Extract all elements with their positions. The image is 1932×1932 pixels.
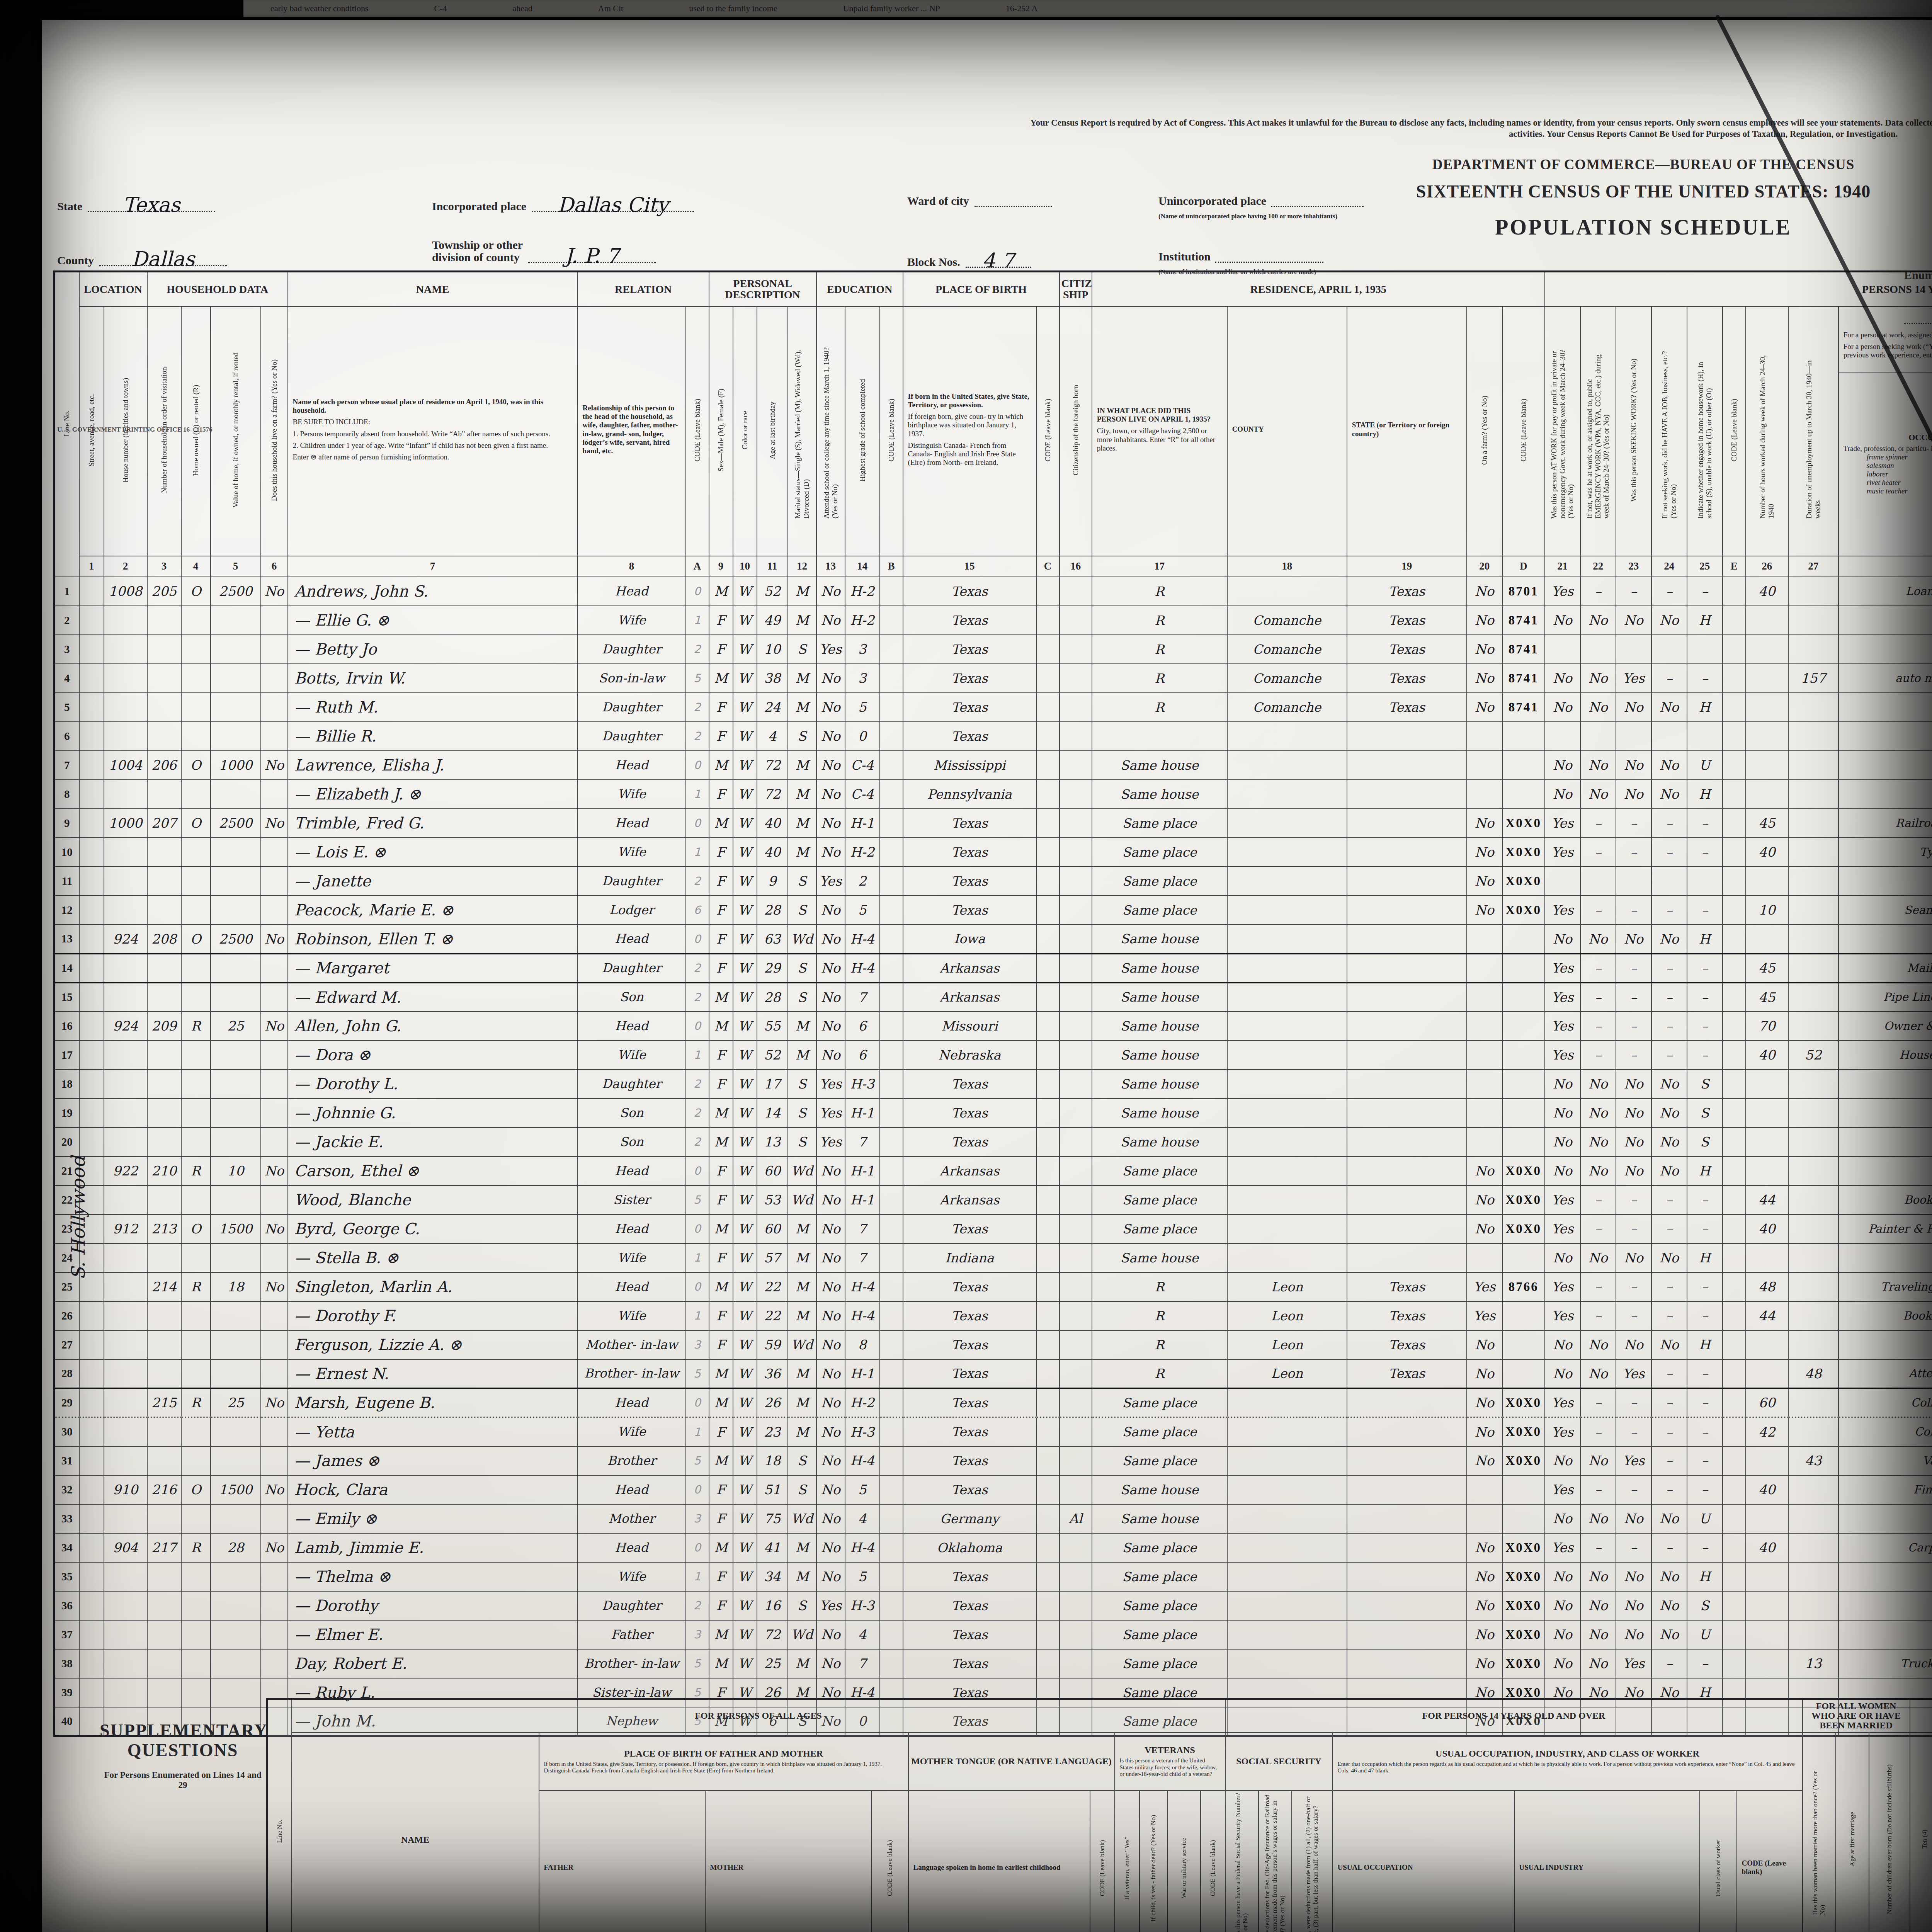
col-number-street: 1 (79, 556, 104, 577)
cell-grade: H-3 (845, 1070, 880, 1099)
cell-r17: R (1092, 606, 1227, 635)
cell-codeE (1723, 1388, 1746, 1417)
cell-codeC (1036, 1330, 1060, 1359)
cell-c23: Yes (1616, 1446, 1651, 1475)
cell-hh (147, 693, 181, 722)
cell-codeE (1723, 1562, 1746, 1591)
cell-sch: No (816, 809, 845, 838)
population-schedule-table: Line No.LOCATIONHOUSEHOLD DATANAMERELATI… (53, 270, 1932, 1737)
cell-occ (1838, 780, 1932, 809)
cell-race: W (733, 1359, 757, 1388)
cell-c22: No (1580, 1562, 1616, 1591)
cell-occ (1838, 867, 1932, 896)
page-fragment: ahead (513, 3, 532, 14)
cell-codeE (1723, 1041, 1746, 1070)
supp-group2-3: SOCIAL SECURITY (1225, 1733, 1333, 1791)
cell-bp: Texas (903, 1562, 1036, 1591)
cell-house (104, 867, 147, 896)
cell-own (181, 606, 211, 635)
cell-r18: Comanche (1227, 664, 1347, 693)
cell-line-left: 3 (54, 635, 79, 664)
cell-street (79, 1446, 104, 1475)
cell-name: — Ruth M. (288, 693, 578, 722)
supp-header-J-label: CODE (Leave blank) (1739, 1856, 1801, 1882)
cell-house (104, 1446, 147, 1475)
cell-hh: 208 (147, 925, 181, 954)
cell-name: — Johnnie G. (288, 1099, 578, 1128)
cell-codeA: 2 (686, 1070, 709, 1099)
cell-name: Andrews, John S. (288, 577, 578, 606)
cell-r19: Texas (1347, 1272, 1467, 1301)
col-header-val-label: Value of home, if owned, or monthly rent… (231, 351, 240, 509)
cell-codeA: 2 (686, 954, 709, 983)
cell-sch: No (816, 1562, 845, 1591)
cell-c27 (1788, 1504, 1838, 1533)
cell-r17: Same place (1092, 867, 1227, 896)
cell-house (104, 838, 147, 867)
cell-farm (261, 983, 288, 1012)
col-header-street-label: Street, avenue, road, etc. (87, 393, 96, 468)
cell-c25: – (1687, 1475, 1723, 1504)
cell-c22: No (1580, 780, 1616, 809)
cell-c23: Yes (1616, 664, 1651, 693)
table-row: 5— Ruth M.Daughter2FW24MNo5TexasRComanch… (54, 693, 1932, 722)
cell-mar: M (788, 664, 816, 693)
table-row: 29215R25NoMarsh, Eugene B.Head0MW26MNoH-… (54, 1388, 1932, 1417)
cell-line-left: 5 (54, 693, 79, 722)
cell-age: 51 (757, 1475, 788, 1504)
cell-c23: – (1616, 1041, 1651, 1070)
cell-farm: No (261, 1214, 288, 1243)
cell-c25: U (1687, 1620, 1723, 1649)
cell-c21: Yes (1545, 1041, 1580, 1070)
cell-c26 (1746, 1243, 1788, 1272)
cell-codeB (880, 664, 903, 693)
cell-farm: No (261, 577, 288, 606)
cell-r17: Same house (1092, 925, 1227, 954)
cell-own: O (181, 809, 211, 838)
cell-grade: 7 (845, 1214, 880, 1243)
cell-codeD (1502, 1099, 1545, 1128)
cell-r17: Same house (1092, 983, 1227, 1012)
cell-c24: – (1651, 1475, 1687, 1504)
cell-age: 75 (757, 1504, 788, 1533)
cell-age: 22 (757, 1272, 788, 1301)
cell-r18: Comanche (1227, 635, 1347, 664)
cell-cit (1060, 867, 1092, 896)
cell-r17: R (1092, 635, 1227, 664)
cell-r17: Same place (1092, 1446, 1227, 1475)
cell-c21: No (1545, 1591, 1580, 1620)
cell-hh (147, 838, 181, 867)
col-number-hh: 3 (147, 556, 181, 577)
cell-street (79, 809, 104, 838)
supp-header-w48: Has this woman been married more than on… (1803, 1733, 1836, 1932)
col-header-r18-label: COUNTY (1229, 422, 1345, 440)
cell-hh: 217 (147, 1533, 181, 1562)
cell-c22: – (1580, 1417, 1616, 1446)
cell-occ: Housekeeper (1838, 1041, 1932, 1070)
cell-codeC (1036, 1475, 1060, 1504)
col-header-own-label: Home owned (O) or rented (R) (191, 383, 201, 478)
cell-r20 (1467, 925, 1502, 954)
cell-farm (261, 1185, 288, 1214)
cell-sch: No (816, 780, 845, 809)
cell-codeA: 1 (686, 1041, 709, 1070)
supp-header-o45: USUAL OCCUPATION (1333, 1791, 1514, 1932)
occ-example: rivet heater (1844, 478, 1932, 487)
cell-codeD: X0X0 (1502, 1649, 1545, 1678)
cell-val (211, 1359, 261, 1388)
cell-bp: Mississippi (903, 751, 1036, 780)
cell-bp: Nebraska (903, 1041, 1036, 1070)
group-header-0: LOCATION (79, 272, 147, 306)
cell-codeE (1723, 1330, 1746, 1359)
cell-codeB (880, 693, 903, 722)
cell-bp: Arkansas (903, 1156, 1036, 1185)
cell-sch: No (816, 1533, 845, 1562)
cell-grade: C-4 (845, 780, 880, 809)
supp-header-w50-label: Number of children ever born (Do not inc… (1885, 1763, 1893, 1916)
cell-house (104, 1301, 147, 1330)
cell-sch: No (816, 751, 845, 780)
cell-bp: Texas (903, 1475, 1036, 1504)
cell-codeC (1036, 1185, 1060, 1214)
cell-bp: Texas (903, 1301, 1036, 1330)
table-row: 6— Billie R.Daughter2FW4SNo0Texas6 (54, 722, 1932, 751)
cell-codeC (1036, 577, 1060, 606)
cell-sch: No (816, 1330, 845, 1359)
cell-occ: Railroad Clerk (1838, 809, 1932, 838)
cell-c22: No (1580, 693, 1616, 722)
cell-val (211, 1504, 261, 1533)
cell-sex: M (709, 751, 733, 780)
cell-age: 9 (757, 867, 788, 896)
cell-val (211, 1562, 261, 1591)
table-row: 4Botts, Irvin W.Son-in-law5MW38MNo3Texas… (54, 664, 1932, 693)
cell-c24: – (1651, 809, 1687, 838)
cell-c25: S (1687, 1099, 1723, 1128)
supp-header-l38-line: Language spoken in home in earliest chil… (913, 1863, 1085, 1872)
cell-house (104, 693, 147, 722)
cell-grade: H-4 (845, 925, 880, 954)
cell-sch: Yes (816, 635, 845, 664)
cell-c26: 40 (1746, 577, 1788, 606)
cell-val: 1500 (211, 1475, 261, 1504)
col-header-name-line: BE SURE TO INCLUDE: (293, 418, 573, 426)
cell-sex: M (709, 1359, 733, 1388)
cell-codeE (1723, 635, 1746, 664)
col-number-codeD: D (1502, 556, 1545, 577)
table-row: 27Ferguson, Lizzie A. ⊗Mother- in-law3FW… (54, 1330, 1932, 1359)
cell-race: W (733, 954, 757, 983)
cell-sex: F (709, 1156, 733, 1185)
cell-grade: H-2 (845, 1388, 880, 1417)
supplementary-section: SUPPLEMENTARY QUESTIONS For Persons Enum… (100, 1698, 1932, 1932)
cell-codeE (1723, 1301, 1746, 1330)
cell-c26: 40 (1746, 838, 1788, 867)
cell-r20 (1467, 751, 1502, 780)
cell-sch: No (816, 1272, 845, 1301)
table-row: 30— YettaWife1FW23MNoH-3TexasSame placeN… (54, 1417, 1932, 1446)
cell-codeD: 8741 (1502, 635, 1545, 664)
cell-c24: – (1651, 1041, 1687, 1070)
cell-r20 (1467, 1099, 1502, 1128)
cell-r20 (1467, 1475, 1502, 1504)
cell-own (181, 664, 211, 693)
cell-name: Robinson, Ellen T. ⊗ (288, 925, 578, 954)
occ-sub-title: OCCUPATION, INDUSTRY, AND CLASS OF WORKE… (1844, 319, 1932, 329)
col-header-c21: Was this person AT WORK for pay or profi… (1545, 306, 1580, 556)
cell-c26: 44 (1746, 1185, 1788, 1214)
cell-r19 (1347, 1475, 1467, 1504)
cell-mar: M (788, 1359, 816, 1388)
cell-cit (1060, 1156, 1092, 1185)
cell-hh (147, 1446, 181, 1475)
cell-c25: – (1687, 1359, 1723, 1388)
cell-c25 (1687, 722, 1723, 751)
supp-header-line-left-label: Line No. (276, 1818, 284, 1844)
cell-mar: M (788, 809, 816, 838)
county-value: Dallas (99, 249, 227, 266)
cell-bp: Texas (903, 722, 1036, 751)
cell-sex: M (709, 1620, 733, 1649)
cell-c27 (1788, 1475, 1838, 1504)
cell-r18 (1227, 1012, 1347, 1041)
supplementary-table: Line No.FOR PERSONS OF ALL AGESFOR PERSO… (266, 1698, 1932, 1932)
cell-c26 (1746, 693, 1788, 722)
col-number-occ: 28 (1838, 556, 1932, 577)
cell-c26 (1746, 606, 1788, 635)
cell-sch: No (816, 1649, 845, 1678)
cell-c21: Yes (1545, 1533, 1580, 1562)
col-number-c23: 23 (1616, 556, 1651, 577)
table-row: 11008205O2500NoAndrews, John S.Head0MW52… (54, 577, 1932, 606)
col-number-mar: 12 (788, 556, 816, 577)
cell-rel: Lodger (578, 896, 686, 925)
cell-sch: No (816, 1475, 845, 1504)
cell-codeC (1036, 1012, 1060, 1041)
cell-c23: No (1616, 1330, 1651, 1359)
cell-c22: – (1580, 1388, 1616, 1417)
cell-sch: No (816, 1504, 845, 1533)
col-header-c25: Indicate whether engaged in home housewo… (1687, 306, 1723, 556)
cell-name: Ferguson, Lizzie A. ⊗ (288, 1330, 578, 1359)
cell-name: — Dorothy (288, 1591, 578, 1620)
cell-grade: 4 (845, 1620, 880, 1649)
cell-name: — Elmer E. (288, 1620, 578, 1649)
cell-age: 63 (757, 925, 788, 954)
unincorporated-label: Unincorporated place (1158, 195, 1266, 207)
census-line: SIXTEENTH CENSUS OF THE UNITED STATES: 1… (1286, 181, 1932, 202)
cell-r17: Same place (1092, 1533, 1227, 1562)
cell-c21: No (1545, 1330, 1580, 1359)
cell-rel: Sister (578, 1185, 686, 1214)
cell-r17: Same place (1092, 1185, 1227, 1214)
cell-cit (1060, 1214, 1092, 1243)
main-thead: Line No.LOCATIONHOUSEHOLD DATANAMERELATI… (54, 272, 1932, 577)
cell-grade: 7 (845, 1649, 880, 1678)
cell-c26: 40 (1746, 1214, 1788, 1243)
cell-r20: No (1467, 577, 1502, 606)
cell-c22: No (1580, 1128, 1616, 1156)
cell-grade: H-1 (845, 1359, 880, 1388)
cell-r18 (1227, 1185, 1347, 1214)
cell-codeB (880, 1272, 903, 1301)
cell-c21: Yes (1545, 954, 1580, 983)
cell-name: — Edward M. (288, 983, 578, 1012)
cell-codeC (1036, 1591, 1060, 1620)
cell-r18 (1227, 1562, 1347, 1591)
cell-r19 (1347, 1562, 1467, 1591)
cell-grade: H-1 (845, 1099, 880, 1128)
cell-c25: – (1687, 1417, 1723, 1446)
cell-codeA: 5 (686, 1359, 709, 1388)
cell-codeA: 0 (686, 1214, 709, 1243)
cell-race: W (733, 1446, 757, 1475)
cell-codeB (880, 577, 903, 606)
cell-farm (261, 664, 288, 693)
street-name-overlay: S. Hollywood (67, 901, 94, 1326)
col-header-name: Name of each person whose usual place of… (288, 306, 578, 556)
cell-codeA: 1 (686, 1243, 709, 1272)
cell-age: 34 (757, 1562, 788, 1591)
cell-c23: No (1616, 1099, 1651, 1128)
cell-r18: Leon (1227, 1301, 1347, 1330)
cell-mar: S (788, 896, 816, 925)
cell-bp: Texas (903, 1359, 1036, 1388)
main-sub-row: Street, avenue, road, etc.House number (… (54, 306, 1932, 372)
cell-c26 (1746, 1359, 1788, 1388)
cell-sex: M (709, 1214, 733, 1243)
cell-own (181, 1359, 211, 1388)
col-header-c23: Was this person SEEKING WORK? (Yes or No… (1616, 306, 1651, 556)
cell-r17: Same place (1092, 838, 1227, 867)
cell-grade: H-4 (845, 1446, 880, 1475)
supp-group1-2: FOR ALL WOMEN WHO ARE OR HAVE BEEN MARRI… (1803, 1699, 1910, 1733)
cell-own: O (181, 751, 211, 780)
supp-group2-1: MOTHER TONGUE (OR NATIVE LANGUAGE) (908, 1733, 1115, 1791)
cell-grade: H-1 (845, 1156, 880, 1185)
cell-mar: M (788, 577, 816, 606)
cell-name: Day, Robert E. (288, 1649, 578, 1678)
cell-bp: Texas (903, 1649, 1036, 1678)
cell-codeD (1502, 925, 1545, 954)
cell-hh (147, 1649, 181, 1678)
cell-sch: No (816, 693, 845, 722)
cell-sch: Yes (816, 1099, 845, 1128)
cell-sex: M (709, 664, 733, 693)
cell-line-left: 9 (54, 809, 79, 838)
cell-codeC (1036, 925, 1060, 954)
cell-c26 (1746, 1099, 1788, 1128)
cell-cit (1060, 722, 1092, 751)
cell-mar: M (788, 838, 816, 867)
occupation-subheader-text: OCCUPATION, INDUSTRY, AND CLASS OF WORKE… (1840, 316, 1932, 363)
cell-rel: Head (578, 809, 686, 838)
cell-r19 (1347, 1620, 1467, 1649)
cell-c25: – (1687, 1214, 1723, 1243)
cell-sch: No (816, 1012, 845, 1041)
col-header-c27: Duration of unemployment up to March 30,… (1788, 306, 1838, 556)
cell-c23: Yes (1616, 1649, 1651, 1678)
cell-sex: F (709, 693, 733, 722)
cell-race: W (733, 1185, 757, 1214)
cell-codeC (1036, 1128, 1060, 1156)
cell-bp: Texas (903, 1591, 1036, 1620)
col-number-r19: 19 (1347, 556, 1467, 577)
cell-farm: No (261, 809, 288, 838)
cell-hh: 215 (147, 1388, 181, 1417)
col-header-sch-label: Attended school or college any time sinc… (822, 340, 839, 520)
cell-r17: Same place (1092, 1214, 1227, 1243)
group-header-5: EDUCATION (816, 272, 903, 306)
cell-codeD (1502, 1012, 1545, 1041)
cell-cit (1060, 1562, 1092, 1591)
cell-street (79, 780, 104, 809)
cell-c24: – (1651, 1533, 1687, 1562)
cell-val (211, 1128, 261, 1156)
cell-race: W (733, 1214, 757, 1243)
cell-house (104, 896, 147, 925)
cell-race: W (733, 838, 757, 867)
cell-sex: F (709, 1504, 733, 1533)
cell-r19 (1347, 896, 1467, 925)
cell-farm (261, 1446, 288, 1475)
cell-c21 (1545, 722, 1580, 751)
col-header-occ: OCCUPATIONTrade, profession, or particu-… (1838, 372, 1932, 556)
cell-own (181, 1243, 211, 1272)
cell-c23: No (1616, 693, 1651, 722)
cell-codeB (880, 1533, 903, 1562)
cell-r20 (1467, 983, 1502, 1012)
cell-bp: Texas (903, 1272, 1036, 1301)
cell-codeE (1723, 867, 1746, 896)
cell-mar: M (788, 606, 816, 635)
table-row: 26— Dorothy F.Wife1FW22MNoH-4TexasRLeonT… (54, 1301, 1932, 1330)
cell-race: W (733, 1591, 757, 1620)
cell-street (79, 1620, 104, 1649)
supplementary-title: SUPPLEMENTARY QUESTIONS (100, 1721, 266, 1760)
cell-codeB (880, 1649, 903, 1678)
cell-r17: Same place (1092, 896, 1227, 925)
cell-c22: No (1580, 664, 1616, 693)
cell-c23: No (1616, 1620, 1651, 1649)
cell-r20 (1467, 1012, 1502, 1041)
cell-house (104, 1620, 147, 1649)
cell-age: 41 (757, 1533, 788, 1562)
cell-codeA: 0 (686, 1533, 709, 1562)
cell-line-left: 11 (54, 867, 79, 896)
cell-codeD: X0X0 (1502, 1388, 1545, 1417)
cell-occ: Attendant (1838, 1359, 1932, 1388)
cell-street (79, 664, 104, 693)
cell-house (104, 1330, 147, 1359)
cell-bp: Texas (903, 664, 1036, 693)
cell-c26: 42 (1746, 1417, 1788, 1446)
cell-cit (1060, 954, 1092, 983)
cell-street (79, 1562, 104, 1591)
cell-street (79, 1417, 104, 1446)
cell-sex: M (709, 809, 733, 838)
cell-age: 60 (757, 1214, 788, 1243)
cell-occ: Bookkeeper (1838, 1301, 1932, 1330)
cell-codeD (1502, 1243, 1545, 1272)
cell-val (211, 1301, 261, 1330)
cell-codeA: 3 (686, 1504, 709, 1533)
cell-val: 10 (211, 1156, 261, 1185)
cell-age: 14 (757, 1099, 788, 1128)
